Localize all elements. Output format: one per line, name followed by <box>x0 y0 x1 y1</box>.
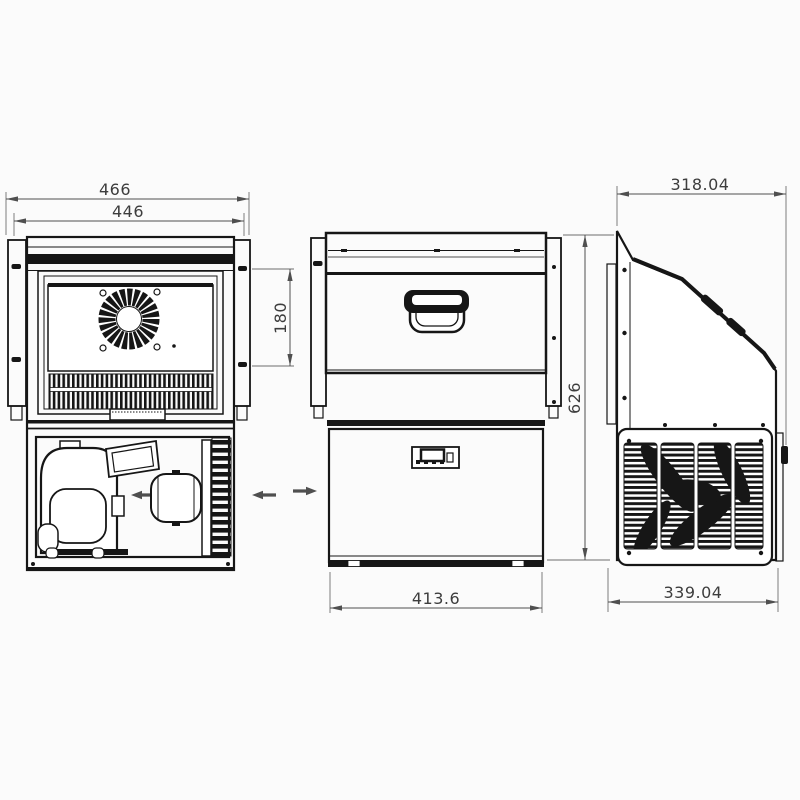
front-right-flange <box>546 238 561 418</box>
front-view <box>311 233 561 567</box>
rear-left-flange <box>8 240 26 420</box>
rear-view <box>8 237 250 571</box>
airflow-arrow-out <box>252 491 276 499</box>
control-panel <box>412 447 459 468</box>
dim-label-overall-height: 626 <box>565 382 584 414</box>
dim-label-side-bottom-depth: 339.04 <box>664 583 723 602</box>
dim-label-front-width: 413.6 <box>412 589 460 608</box>
dim-front-width: 413.6 <box>330 572 542 613</box>
front-left-flange <box>311 238 326 418</box>
rear-divider-band <box>27 420 234 429</box>
vent-column <box>624 443 657 549</box>
vent-column <box>661 443 694 549</box>
side-back-flange <box>607 264 616 424</box>
lid-handle <box>404 290 469 332</box>
vent-column <box>698 443 731 549</box>
rear-top-rail <box>27 247 234 271</box>
dim-label-rear-vent-height: 180 <box>271 302 290 334</box>
compartment-fan-shroud <box>151 470 201 526</box>
terminal-box <box>106 441 159 477</box>
rear-vent-grille <box>49 374 213 420</box>
front-base <box>328 556 544 567</box>
dim-label-rear-outer-width: 466 <box>99 180 131 199</box>
condenser <box>202 438 231 556</box>
rivet-dot <box>172 344 176 348</box>
side-view <box>607 231 788 565</box>
dim-label-rear-inner-width: 446 <box>112 202 144 221</box>
dim-rear-vent-height: 180 <box>252 269 294 366</box>
rear-right-flange <box>234 240 250 420</box>
ice-maker-technical-drawing: 466 446 180 413.6 626 <box>0 0 800 800</box>
airflow-arrow-in <box>293 487 317 495</box>
latch-tab <box>781 446 788 464</box>
dim-side-bottom-depth: 339.04 <box>608 568 778 612</box>
dim-rear-inner-width: 446 <box>14 202 244 236</box>
dim-label-side-top-depth: 318.04 <box>671 175 730 194</box>
vent-column <box>735 443 763 549</box>
dim-overall-height: 626 <box>547 235 614 560</box>
rear-base <box>27 562 234 571</box>
rear-fan-panel <box>48 283 213 371</box>
side-vent-box <box>618 429 788 565</box>
